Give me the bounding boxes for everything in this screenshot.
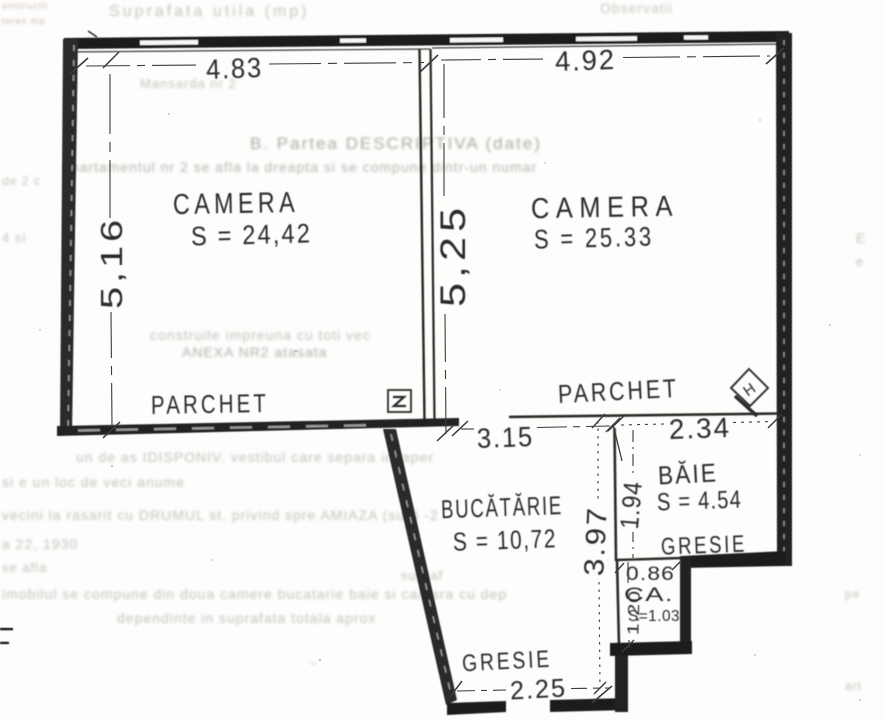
svg-text:ANEXA NR2 atasata: ANEXA NR2 atasata xyxy=(182,344,327,360)
svg-text:S = 24,42: S = 24,42 xyxy=(191,218,313,251)
svg-text:si e un loc de veci anume: si e un loc de veci anume xyxy=(2,474,185,490)
svg-text:CAMERA: CAMERA xyxy=(173,187,300,221)
svg-text:un de as IDISPONIV. vestibul c: un de as IDISPONIV. vestibul care separa… xyxy=(76,449,434,465)
svg-text:a 22, 1930: a 22, 1930 xyxy=(2,536,78,552)
svg-text:4 si: 4 si xyxy=(2,230,26,245)
svg-text:onstructii: onstructii xyxy=(2,1,48,11)
svg-text:1.94: 1.94 xyxy=(614,480,648,530)
svg-text:Suprafata utila (mp): Suprafata utila (mp) xyxy=(109,3,310,20)
svg-text:PARCHET: PARCHET xyxy=(151,388,270,420)
svg-text:Observatii: Observatii xyxy=(600,0,673,16)
svg-text:de 2 c: de 2 c xyxy=(2,174,41,188)
svg-text:S = 25.33: S = 25.33 xyxy=(534,221,655,254)
svg-text:0.86: 0.86 xyxy=(626,564,675,585)
svg-text:se afla: se afla xyxy=(2,560,47,575)
svg-text:BĂIE: BĂIE xyxy=(657,457,718,490)
svg-text:5,16: 5,16 xyxy=(94,216,129,309)
svg-text:dependinte in suprafata totala: dependinte in suprafata totala aprox xyxy=(117,610,376,626)
svg-text:4.83: 4.83 xyxy=(205,52,263,85)
svg-text:vecini la rasarit cu DRUMUL st: vecini la rasarit cu DRUMUL st. privind … xyxy=(2,507,439,523)
svg-text:GRESIE: GRESIE xyxy=(461,646,552,678)
svg-text:construite impreuna cu toti ve: construite impreuna cu toti vec xyxy=(150,327,371,343)
svg-text:B. Partea DESCRIPTIVA (date): B. Partea DESCRIPTIVA (date) xyxy=(250,134,542,153)
svg-text:2.34: 2.34 xyxy=(668,412,731,445)
svg-text:CAMERA: CAMERA xyxy=(531,191,680,226)
svg-text:GRESIE: GRESIE xyxy=(661,531,748,561)
svg-text:pe: pe xyxy=(845,587,860,601)
svg-text:2.25: 2.25 xyxy=(509,673,567,706)
svg-text:E: E xyxy=(856,230,866,246)
svg-text:3.97: 3.97 xyxy=(578,505,613,577)
svg-text:~: ~ xyxy=(310,657,318,671)
svg-text:PARCHET: PARCHET xyxy=(557,373,679,409)
svg-text:art: art xyxy=(845,679,862,693)
svg-text:5,25: 5,25 xyxy=(434,203,473,307)
svg-text:S = 10,72: S = 10,72 xyxy=(452,523,557,557)
svg-text:1.20: 1.20 xyxy=(625,590,644,636)
svg-text:3.15: 3.15 xyxy=(476,421,534,454)
svg-text:apartamentul nr 2 se afla la d: apartamentul nr 2 se afla la dreapta si … xyxy=(62,159,537,175)
svg-text:e: e xyxy=(856,254,864,269)
svg-text:4.92: 4.92 xyxy=(554,44,616,77)
svg-text:S = 4.54: S = 4.54 xyxy=(657,486,743,517)
svg-text:BUCĂTĂRIE: BUCĂTĂRIE xyxy=(441,490,564,524)
svg-text:teren mp: teren mp xyxy=(2,16,46,26)
